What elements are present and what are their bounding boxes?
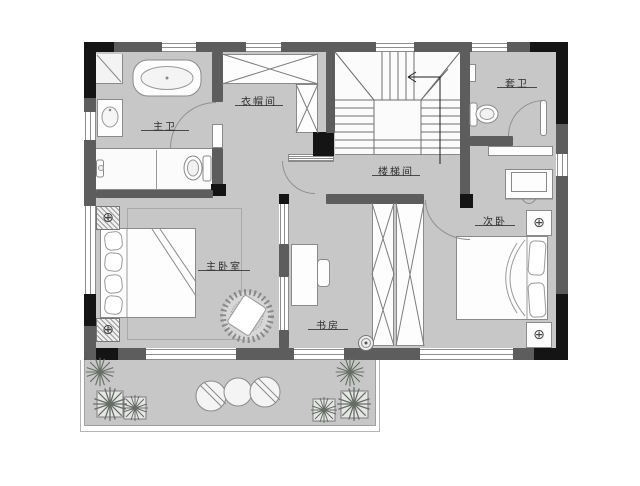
- nightstand: ⊕: [526, 210, 552, 236]
- window: [376, 42, 414, 52]
- window: [246, 42, 281, 52]
- lamp-icon: ⊕: [102, 210, 114, 226]
- ensuite-bath-label: 套卫: [497, 75, 537, 88]
- floor-plan: ⊕ ⊕ ⊕ ⊕: [0, 0, 640, 486]
- wall-corner: [84, 294, 96, 326]
- cloakroom-wardrobe-top: [222, 54, 318, 84]
- tv-screen: [511, 172, 547, 192]
- bath-stalls: [96, 148, 213, 190]
- stairs-area: [335, 52, 460, 155]
- master-bath-label: 主卫: [141, 118, 189, 131]
- wall-segment: [96, 190, 213, 198]
- lamp-icon: ⊕: [533, 215, 545, 231]
- second-bed: [456, 236, 548, 320]
- lamp-icon: ⊕: [102, 322, 114, 338]
- window: [420, 348, 513, 360]
- window: [294, 348, 344, 360]
- bath-vanity: [97, 99, 123, 137]
- second-bedroom-label: 次卧: [475, 213, 515, 226]
- master-bed: [100, 228, 196, 318]
- window: [146, 348, 236, 360]
- shower-corner: [96, 54, 123, 84]
- cloakroom-label: 衣帽间: [235, 93, 283, 106]
- study-wardrobe: [372, 203, 394, 346]
- nightstand: ⊕: [96, 318, 120, 342]
- wall-segment: [460, 42, 470, 195]
- study-label: 书房: [308, 317, 348, 330]
- wall-segment: [212, 52, 223, 102]
- window: [162, 42, 196, 52]
- cloakroom-wardrobe-side: [296, 84, 318, 133]
- balcony-floor: [84, 360, 376, 426]
- wall-corner: [556, 42, 568, 124]
- wall-segment: [279, 330, 289, 348]
- bedroom2-shelf: [488, 146, 553, 156]
- wall-segment: [279, 244, 289, 277]
- wall-corner: [279, 194, 289, 204]
- wall-corner: [211, 184, 226, 196]
- glass-partition: [279, 277, 289, 330]
- window: [84, 112, 96, 140]
- wall-segment: [326, 52, 335, 133]
- glass-partition: [279, 204, 289, 244]
- wall-corner: [84, 42, 96, 98]
- nightstand: ⊕: [96, 206, 120, 230]
- lamp-icon: ⊕: [533, 327, 545, 343]
- bedroom2-wardrobe: [396, 203, 424, 346]
- wall-corner: [556, 294, 568, 360]
- stairwell-label: 楼梯间: [372, 163, 420, 176]
- desk-chair: [317, 259, 330, 287]
- wall-segment: [326, 194, 424, 204]
- stall-divider: [156, 150, 157, 190]
- study-desk: [291, 244, 318, 306]
- master-bedroom-label: 主卧室: [198, 258, 250, 271]
- nightstand: ⊕: [526, 322, 552, 348]
- window: [472, 42, 507, 52]
- window: [556, 154, 568, 176]
- wall-corner: [313, 132, 334, 156]
- wall-segment: [470, 136, 513, 146]
- wall-corner: [460, 194, 473, 208]
- wall-segment: [212, 148, 223, 186]
- window: [84, 206, 96, 294]
